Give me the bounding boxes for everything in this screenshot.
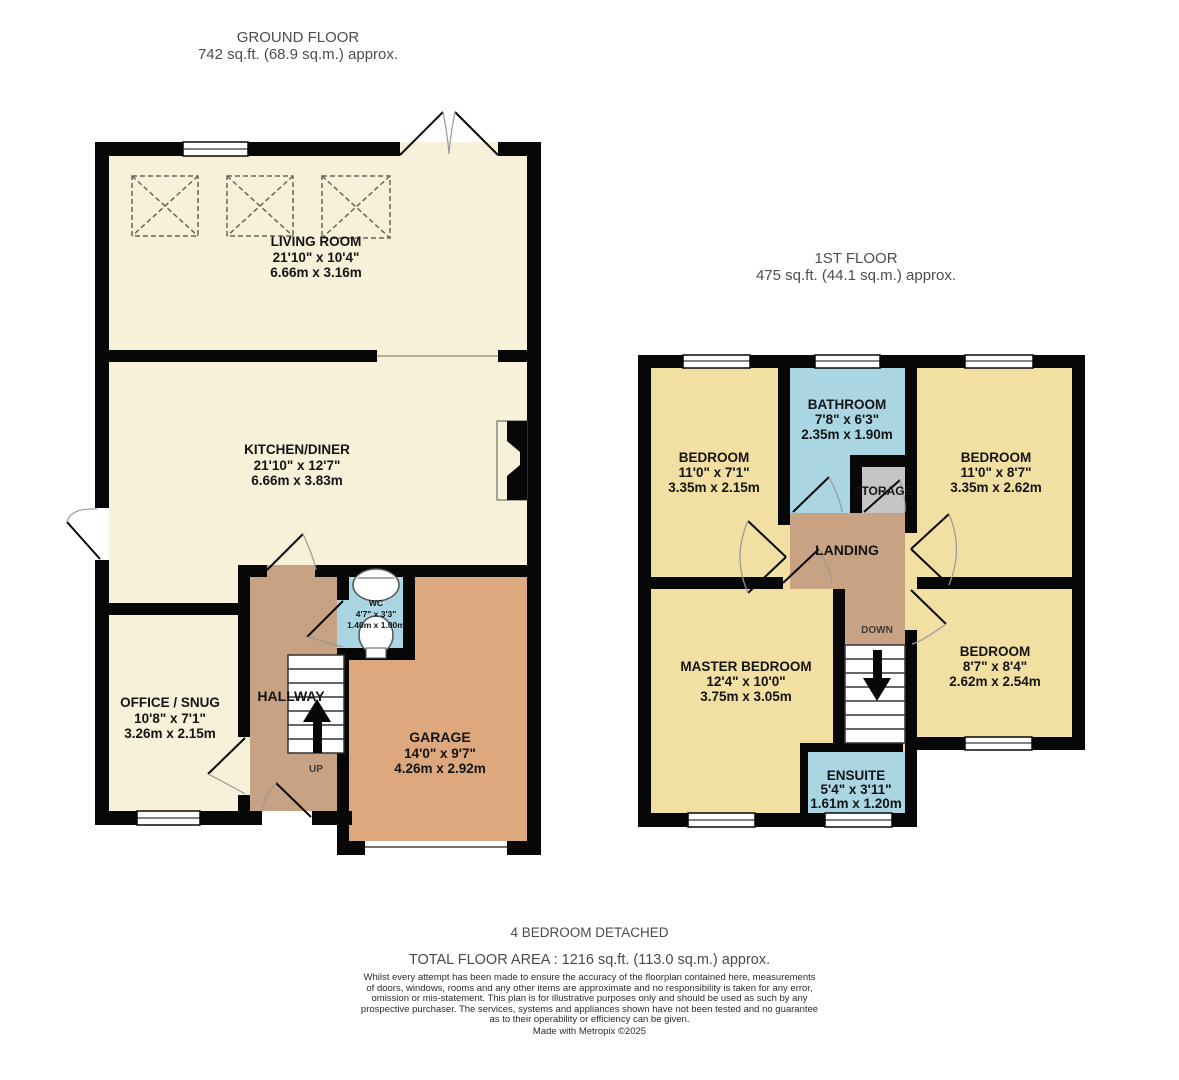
wc-metric: 1.40m x 1.00m (347, 620, 405, 630)
living-room-imperial: 21'10" x 10'4" (273, 250, 360, 265)
side-door-opening (95, 508, 109, 560)
kitchen-name: KITCHEN/DINER (244, 442, 350, 457)
wc-imperial: 4'7" x 3'3" (356, 609, 396, 619)
bedroom-br-name: BEDROOM (960, 644, 1031, 659)
bedroom-br-imperial: 8'7" x 8'4" (963, 659, 1027, 674)
stairs-up-label: UP (309, 764, 323, 775)
master-imperial: 12'4" x 10'0" (706, 674, 785, 689)
garage-door-opening (365, 841, 507, 855)
disclaimer-line: Whilst every attempt has been made to en… (0, 973, 1179, 984)
garage-imperial: 14'0" x 9'7" (404, 746, 476, 761)
floorplan-page: GROUND FLOOR 742 sq.ft. (68.9 sq.m.) app… (0, 0, 1179, 1080)
first-floor-plan: BEDROOM 11'0" x 7'1" 3.35m x 2.15m BATHR… (638, 355, 1085, 827)
stairs-down-label: DOWN (861, 625, 893, 636)
sink-icon (353, 569, 399, 601)
stairs-up (288, 655, 344, 753)
up-arrow-icon (313, 722, 322, 753)
storage-name: STORAGE (853, 484, 912, 498)
bedroom-tr-imperial: 11'0" x 8'7" (960, 465, 1031, 480)
hallway-name: HALLWAY (257, 688, 325, 704)
bedroom-tr-name: BEDROOM (961, 450, 1032, 465)
property-type: 4 BEDROOM DETACHED (0, 925, 1179, 940)
kitchen-metric: 6.66m x 3.83m (251, 473, 343, 488)
floorplan-canvas: LIVING ROOM 21'10" x 10'4" 6.66m x 3.16m… (0, 0, 1179, 1080)
metropix-credit: Made with Metropix ©2025 (0, 1026, 1179, 1037)
bedroom-tl-metric: 3.35m x 2.15m (668, 480, 760, 495)
down-arrow-icon (873, 650, 882, 680)
disclaimer-line: as to their operability or efficiency ca… (0, 1015, 1179, 1026)
office-name: OFFICE / SNUG (120, 695, 220, 710)
wc-name: WC (369, 598, 383, 608)
master-name: MASTER BEDROOM (680, 659, 811, 674)
bedroom-tr-metric: 3.35m x 2.62m (950, 480, 1042, 495)
bathroom-metric: 2.35m x 1.90m (801, 427, 893, 442)
bedroom-tl-name: BEDROOM (679, 450, 750, 465)
living-room-name: LIVING ROOM (271, 234, 362, 249)
ensuite-name: ENSUITE (827, 768, 886, 783)
ensuite-metric: 1.61m x 1.20m (810, 796, 902, 811)
garage-name: GARAGE (409, 729, 470, 745)
footer: 4 BEDROOM DETACHED TOTAL FLOOR AREA : 12… (0, 925, 1179, 1037)
disclaimer: Whilst every attempt has been made to en… (0, 973, 1179, 1026)
ensuite-imperial: 5'4" x 3'11" (820, 782, 891, 797)
stairs-down (845, 645, 905, 743)
disclaimer-line: omission or mis-statement. This plan is … (0, 994, 1179, 1005)
bathroom-name: BATHROOM (808, 397, 887, 412)
front-door-opening (262, 811, 312, 825)
total-floor-area: TOTAL FLOOR AREA : 1216 sq.ft. (113.0 sq… (0, 952, 1179, 968)
living-room-metric: 6.66m x 3.16m (270, 265, 362, 280)
office-metric: 3.26m x 2.15m (124, 726, 216, 741)
office-imperial: 10'8" x 7'1" (134, 711, 206, 726)
landing-name: LANDING (815, 542, 879, 558)
chimney-breast (497, 421, 527, 500)
bathroom-imperial: 7'8" x 6'3" (815, 412, 879, 427)
ground-floor-plan: LIVING ROOM 21'10" x 10'4" 6.66m x 3.16m… (67, 112, 541, 855)
garage-metric: 4.26m x 2.92m (394, 761, 486, 776)
master-metric: 3.75m x 3.05m (700, 689, 792, 704)
bedroom-tl-imperial: 11'0" x 7'1" (678, 465, 749, 480)
bedroom-br-metric: 2.62m x 2.54m (949, 674, 1041, 689)
kitchen-imperial: 21'10" x 12'7" (254, 458, 341, 473)
